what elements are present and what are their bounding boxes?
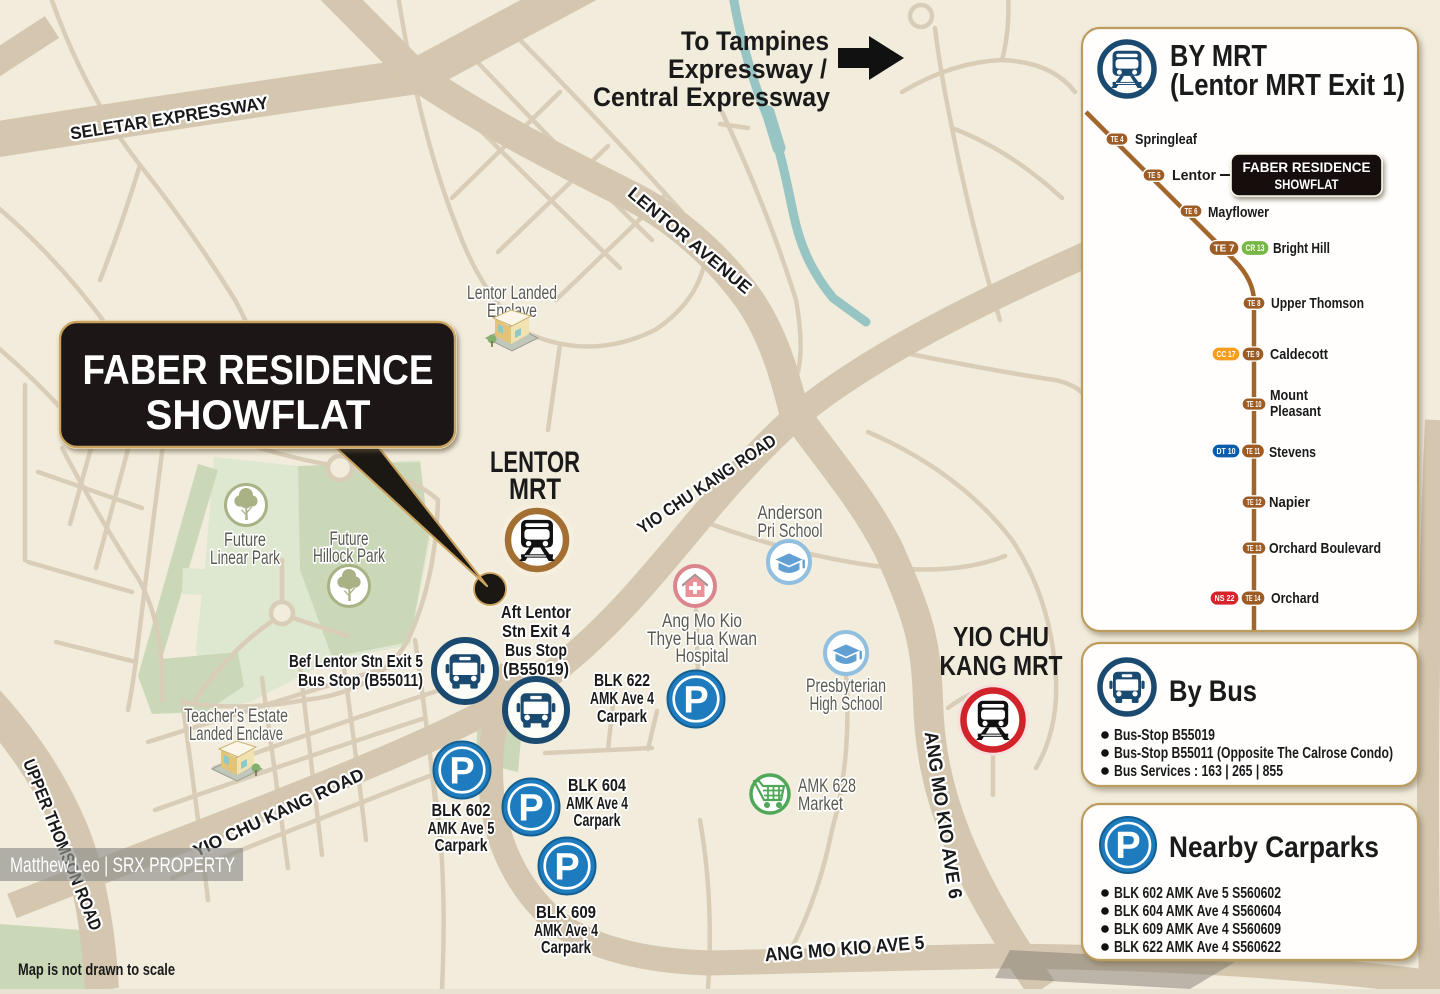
svg-text:NS 22: NS 22: [1215, 593, 1235, 603]
svg-text:Bus-Stop B55011 (Opposite The: Bus-Stop B55011 (Opposite The Calrose Co…: [1114, 745, 1393, 762]
svg-text:YIO CHU: YIO CHU: [953, 621, 1049, 652]
svg-text:Carpark: Carpark: [597, 706, 647, 726]
svg-text:TE 11: TE 11: [1246, 446, 1260, 456]
svg-text:Aft Lentor: Aft Lentor: [501, 602, 571, 622]
svg-text:BLK 622: BLK 622: [594, 670, 650, 690]
svg-text:BLK 602 AMK Ave 5 S560602: BLK 602 AMK Ave 5 S560602: [1114, 885, 1281, 902]
svg-text:Carpark: Carpark: [435, 835, 488, 855]
svg-text:Carpark: Carpark: [574, 810, 621, 830]
svg-text:Lentor: Lentor: [1172, 167, 1216, 184]
svg-text:SHOWFLAT: SHOWFLAT: [1275, 177, 1340, 192]
svg-text:Mayflower: Mayflower: [1208, 204, 1269, 221]
svg-text:TE 10: TE 10: [1247, 399, 1262, 409]
svg-text:BLK 604 AMK Ave 4 S560604: BLK 604 AMK Ave 4 S560604: [1114, 903, 1281, 920]
svg-text:Bus Services : 163 | 265 | 855: Bus Services : 163 | 265 | 855: [1114, 763, 1283, 780]
svg-text:CC 17: CC 17: [1217, 349, 1236, 359]
svg-text:SHOWFLAT: SHOWFLAT: [146, 391, 371, 438]
svg-text:Bright Hill: Bright Hill: [1273, 240, 1330, 257]
svg-text:MRT: MRT: [509, 473, 561, 506]
svg-text:Caldecott: Caldecott: [1270, 346, 1328, 363]
svg-text:High School: High School: [810, 693, 883, 715]
svg-text:P: P: [1115, 825, 1140, 867]
svg-text:Orchard: Orchard: [1271, 590, 1319, 607]
svg-text:Expressway /: Expressway /: [668, 54, 827, 84]
svg-text:CR 13: CR 13: [1246, 243, 1265, 253]
svg-text:TE 13: TE 13: [1247, 543, 1262, 553]
svg-text:KANG MRT: KANG MRT: [940, 650, 1063, 681]
svg-text:Bus-Stop B55019: Bus-Stop B55019: [1114, 727, 1215, 744]
svg-text:TE 4: TE 4: [1111, 134, 1124, 144]
svg-text:Stn Exit 4: Stn Exit 4: [502, 621, 570, 641]
svg-text:TE 5: TE 5: [1148, 170, 1161, 180]
svg-text:Carpark: Carpark: [541, 937, 591, 957]
svg-text:BLK 609: BLK 609: [536, 902, 596, 922]
svg-text:Bus Stop (B55011): Bus Stop (B55011): [298, 670, 423, 690]
svg-text:BLK 622 AMK Ave 4 S560622: BLK 622 AMK Ave 4 S560622: [1114, 939, 1281, 956]
svg-text:Linear Park: Linear Park: [210, 547, 280, 569]
svg-text:DT 10: DT 10: [1217, 446, 1236, 456]
svg-text:Map is not drawn to scale: Map is not drawn to scale: [18, 960, 175, 979]
svg-text:BLK 604: BLK 604: [568, 775, 626, 795]
svg-text:TE 8: TE 8: [1248, 298, 1261, 308]
svg-text:Nearby Carparks: Nearby Carparks: [1169, 831, 1379, 864]
svg-text:(Lentor MRT Exit 1): (Lentor MRT Exit 1): [1170, 67, 1405, 102]
svg-text:TE 6: TE 6: [1185, 206, 1198, 216]
svg-text:BLK 602: BLK 602: [432, 800, 491, 820]
svg-text:Hospital: Hospital: [676, 645, 729, 667]
svg-text:Stevens: Stevens: [1269, 444, 1316, 461]
svg-text:Springleaf: Springleaf: [1135, 131, 1198, 148]
svg-text:Upper Thomson: Upper Thomson: [1271, 295, 1364, 312]
svg-text:Bus Stop: Bus Stop: [505, 640, 567, 660]
svg-text:By Bus: By Bus: [1169, 675, 1257, 708]
svg-text:TE 9: TE 9: [1247, 349, 1260, 359]
svg-text:TE 14: TE 14: [1246, 593, 1261, 603]
svg-text:Pleasant: Pleasant: [1270, 403, 1321, 420]
svg-text:FABER RESIDENCE: FABER RESIDENCE: [83, 346, 434, 393]
svg-text:Matthew Leo | SRX PROPERTY: Matthew Leo | SRX PROPERTY: [10, 854, 235, 877]
svg-text:BLK 609 AMK Ave 4 S560609: BLK 609 AMK Ave 4 S560609: [1114, 921, 1281, 938]
svg-text:TE 12: TE 12: [1247, 497, 1262, 507]
svg-text:Central Expressway: Central Expressway: [593, 82, 830, 112]
svg-text:AMK Ave 4: AMK Ave 4: [590, 688, 654, 708]
svg-text:Mount: Mount: [1270, 387, 1308, 404]
svg-text:Orchard Boulevard: Orchard Boulevard: [1269, 540, 1381, 557]
svg-text:Hillock Park: Hillock Park: [313, 545, 385, 567]
svg-text:TE 7: TE 7: [1214, 244, 1235, 255]
svg-text:Napier: Napier: [1269, 494, 1310, 511]
svg-text:Bef Lentor Stn Exit 5: Bef Lentor Stn Exit 5: [289, 651, 423, 671]
svg-text:Pri School: Pri School: [758, 520, 823, 542]
svg-text:FABER RESIDENCE: FABER RESIDENCE: [1243, 160, 1371, 175]
svg-text:Market: Market: [798, 793, 843, 815]
svg-text:To Tampines: To Tampines: [681, 26, 829, 56]
